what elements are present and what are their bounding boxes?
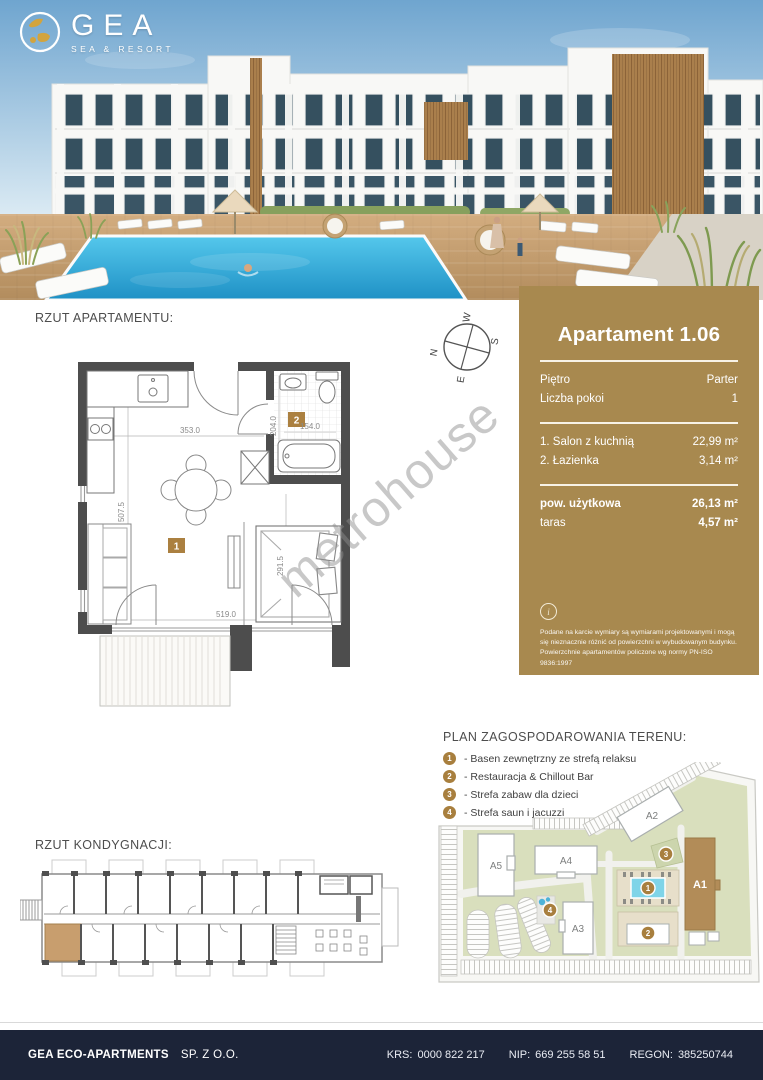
svg-text:2: 2 xyxy=(646,929,651,938)
unit-totals: pow. użytkowa 26,13 m² taras 4,57 m² xyxy=(519,486,759,533)
info-icon: i xyxy=(540,603,557,620)
swimmer xyxy=(244,264,252,272)
site-plan-legend: 1 - Basen zewnętrzny ze strefą relaksu 2… xyxy=(443,752,636,824)
total-row-terrace: taras 4,57 m² xyxy=(540,514,738,533)
svg-text:204.0: 204.0 xyxy=(269,415,278,436)
footer-company: GEA ECO-APARTMENTS SP. Z O.O. xyxy=(28,1049,239,1061)
svg-text:3: 3 xyxy=(664,850,669,859)
stairwell xyxy=(276,926,296,954)
unit-info-card: Apartament 1.06 Piętro Parter Liczba pok… xyxy=(519,286,759,675)
svg-text:E: E xyxy=(456,375,468,384)
footer-regon: REGON:385250744 xyxy=(630,1049,733,1061)
apartment-floor-plan: 1 2 353.0 507.5 519.0 291.5 204.0 154.0 xyxy=(78,362,354,714)
svg-text:S: S xyxy=(490,337,502,346)
svg-text:154.0: 154.0 xyxy=(300,422,321,431)
globe-icon xyxy=(18,10,62,54)
disclaimer-text: Podane na karcie wymiary są wymiarami pr… xyxy=(540,628,741,669)
wardrobe xyxy=(228,536,240,588)
svg-text:519.0: 519.0 xyxy=(216,610,237,619)
footer-krs: KRS:0000 822 217 xyxy=(387,1049,485,1061)
jacuzzi-icon xyxy=(539,899,545,905)
brand-logo: GEA SEA & RESORT xyxy=(18,10,174,54)
dining-table xyxy=(161,455,231,525)
footer-divider xyxy=(0,1022,763,1023)
svg-text:291.5: 291.5 xyxy=(276,555,285,576)
unit-meta: Piętro Parter Liczba pokoi 1 xyxy=(519,362,759,409)
legend-badge-1: 1 xyxy=(443,752,456,765)
unit-title: Apartament 1.06 xyxy=(519,323,759,347)
sofa xyxy=(88,524,131,624)
footer-registry: KRS:0000 822 217 NIP:669 255 58 51 REGON… xyxy=(387,1049,733,1061)
unit-rooms: 1. Salon z kuchnią 22,99 m² 2. Łazienka … xyxy=(519,424,759,471)
building-a1-highlight xyxy=(685,838,720,945)
svg-text:4: 4 xyxy=(548,906,553,915)
room-row-bath: 2. Łazienka 3,14 m² xyxy=(540,452,738,471)
logo-name: GEA xyxy=(71,11,174,41)
section-floor-plan-label: RZUT KONDYGNACJI: xyxy=(35,838,172,852)
footer-nip: NIP:669 255 58 51 xyxy=(509,1049,606,1061)
room-row-living: 1. Salon z kuchnią 22,99 m² xyxy=(540,433,738,452)
legend-item-pool: 1 - Basen zewnętrzny ze strefą relaksu xyxy=(443,752,636,765)
svg-text:A2: A2 xyxy=(646,811,659,822)
logo-tagline: SEA & RESORT xyxy=(71,45,174,54)
legend-item-sauna: 4 - Strefa saun i jacuzzi xyxy=(443,806,636,819)
svg-text:353.0: 353.0 xyxy=(180,426,201,435)
footer: GEA ECO-APARTMENTS SP. Z O.O. KRS:0000 8… xyxy=(0,1030,763,1080)
legend-item-restaurant: 2 - Restauracja & Chillout Bar xyxy=(443,770,636,783)
svg-text:A4: A4 xyxy=(560,856,573,867)
svg-text:A3: A3 xyxy=(572,924,585,935)
meta-row-floor: Piętro Parter xyxy=(540,371,738,390)
section-site-plan-label: PLAN ZAGOSPODAROWANIA TERENU: xyxy=(443,730,687,744)
brochure-page: GEA SEA & RESORT RZUT APARTAMENTU: W S E… xyxy=(0,0,763,1080)
highlighted-unit xyxy=(45,924,81,961)
svg-text:W: W xyxy=(461,311,474,323)
legend-item-playground: 3 - Strefa zabaw dla dzieci xyxy=(443,788,636,801)
svg-text:N: N xyxy=(430,348,441,357)
wood-slat-section xyxy=(612,54,704,216)
terrace xyxy=(100,636,230,706)
total-row-area: pow. użytkowa 26,13 m² xyxy=(540,495,738,514)
washer xyxy=(241,451,269,484)
svg-text:2: 2 xyxy=(294,416,300,427)
kitchen xyxy=(87,371,188,493)
building-a1-label: A1 xyxy=(693,879,707,891)
legend-badge-4: 4 xyxy=(443,806,456,819)
compass-rose-icon: W S E N xyxy=(430,308,502,384)
svg-text:1: 1 xyxy=(174,542,180,553)
storey-plan xyxy=(20,856,405,981)
legend-badge-2: 2 xyxy=(443,770,456,783)
svg-text:1: 1 xyxy=(646,884,651,893)
entrance-stairs xyxy=(20,900,42,920)
legend-badge-3: 3 xyxy=(443,788,456,801)
svg-text:507.5: 507.5 xyxy=(117,501,126,522)
svg-text:A5: A5 xyxy=(490,861,503,872)
meta-row-rooms: Liczba pokoi 1 xyxy=(540,390,738,409)
section-apartment-plan-label: RZUT APARTAMENTU: xyxy=(35,311,174,325)
